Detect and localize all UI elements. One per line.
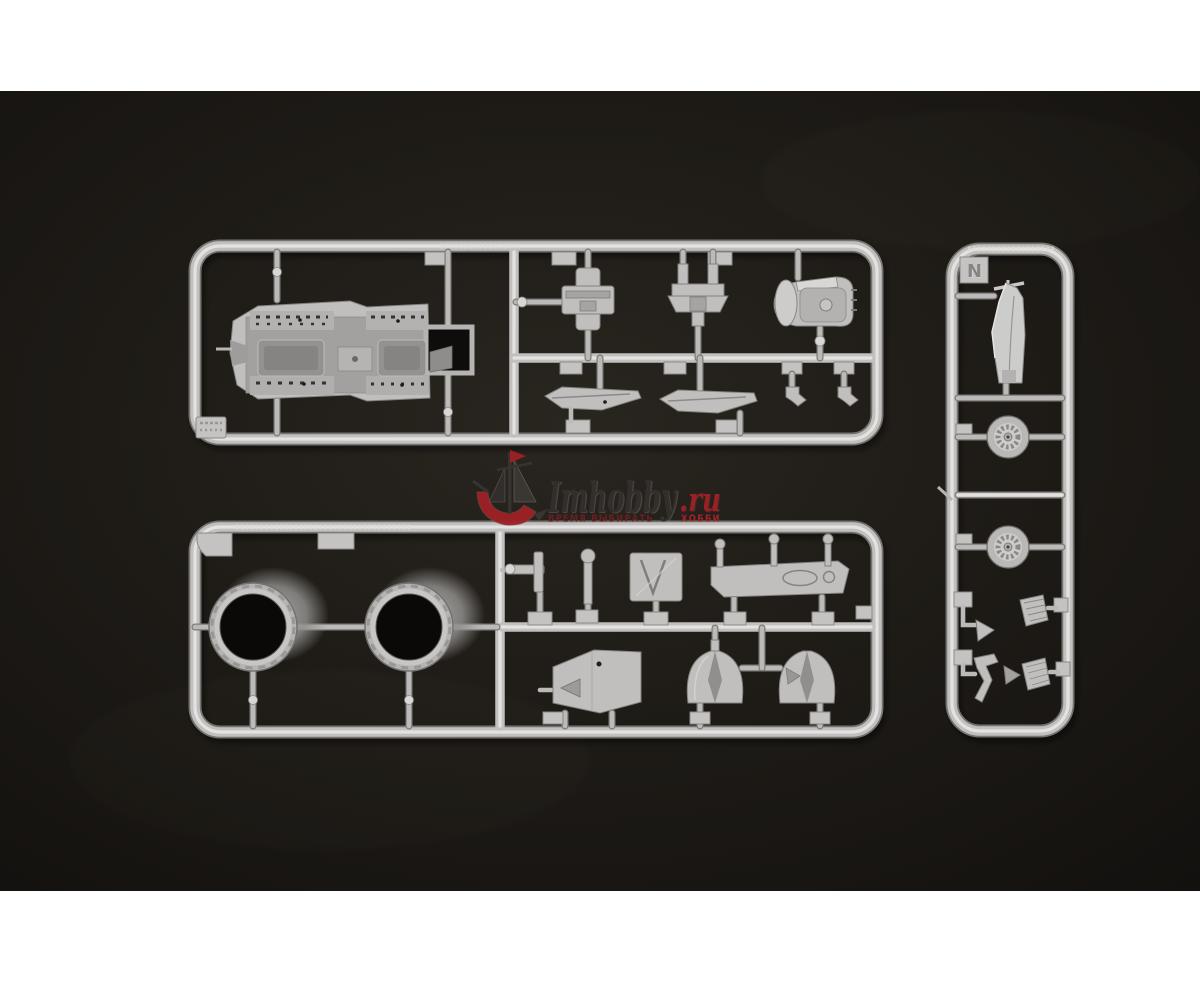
watermark-slogan-left: ВРЕМЯ ВЫБИРАТЬ: [548, 514, 654, 525]
watermark-slogan-right: ХОББИ: [681, 514, 721, 525]
photo-page: N N: [0, 0, 1200, 982]
runner-label: N: [967, 261, 982, 282]
mold-number-tab: [196, 417, 226, 438]
corner-tab: [197, 533, 232, 556]
sprue-photo: N N: [0, 0, 1200, 982]
runner-label-tab: N N: [960, 257, 988, 283]
